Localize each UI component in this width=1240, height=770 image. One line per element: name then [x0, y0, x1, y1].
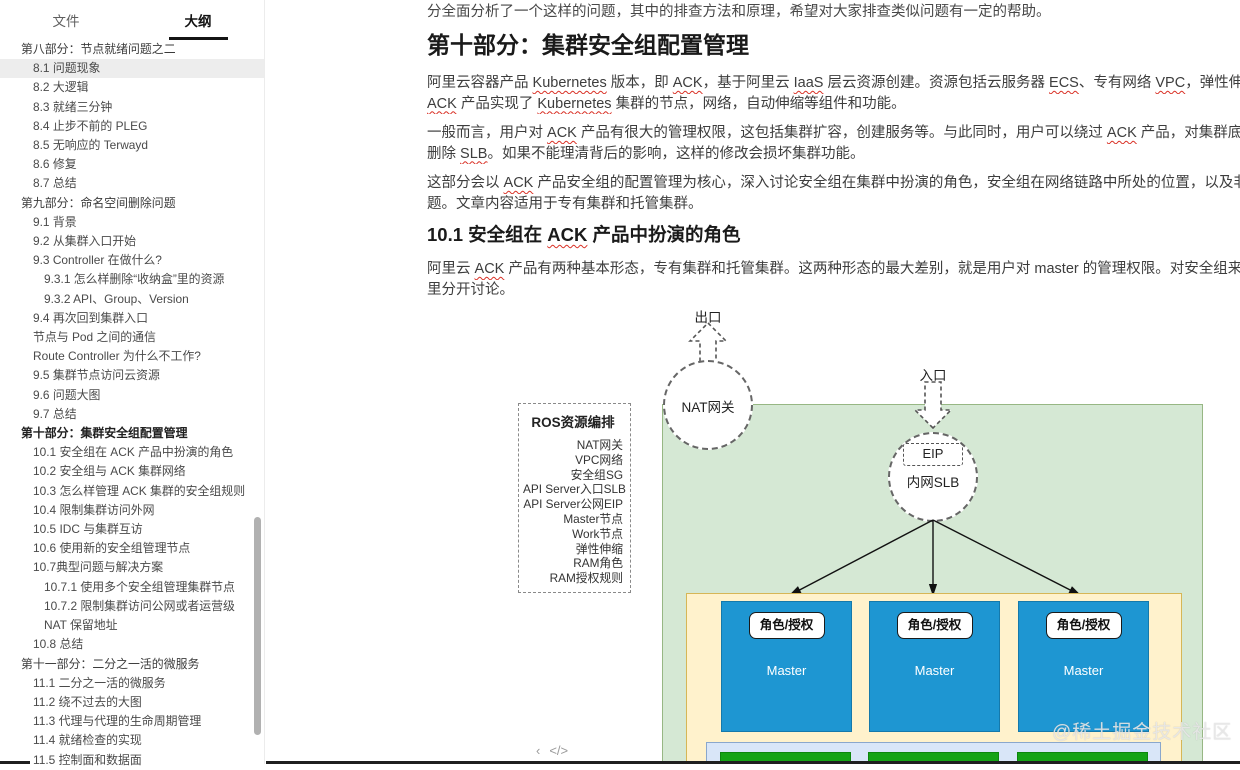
role-auth-tag: 角色/授权: [1046, 612, 1122, 639]
sidebar-item[interactable]: Route Controller 为什么不工作?: [0, 347, 264, 366]
document-pane: 分全面分析了一个这样的问题，其中的排查方法和原理，希望对大家排查类似问题有一定的…: [265, 0, 1240, 764]
sidebar-item[interactable]: 9.4 再次回到集群入口: [0, 309, 264, 328]
sidebar-item[interactable]: 第八部分：节点就绪问题之二: [0, 40, 264, 59]
paragraphs-bottom: 阿里云 ACK 产品有两种基本形态，专有集群和托管集群。这两种形态的最大差别，就…: [427, 259, 1240, 300]
paragraphs-top: 阿里云容器产品 Kubernetes 版本，即 ACK，基于阿里云 IaaS 层…: [427, 73, 1240, 214]
master-group-box: 角色/授权Master角色/授权Master角色/授权Master: [686, 593, 1182, 764]
paragraph: 一般而言，用户对 ACK 产品有很大的管理权限，这包括集群扩容，创建服务等。与此…: [427, 123, 1240, 164]
sidebar-item[interactable]: 9.1 背景: [0, 213, 264, 232]
sidebar-item[interactable]: 10.7.2 限制集群访问公网或者运营级 NAT 保留地址: [0, 597, 264, 635]
tab-outline[interactable]: 大纲: [132, 0, 264, 40]
sidebar-item[interactable]: 9.6 问题大图: [0, 386, 264, 405]
sidebar-item[interactable]: 8.5 无响应的 Terwayd: [0, 136, 264, 155]
master-node-box: 角色/授权Master: [721, 601, 852, 732]
code-view-icon[interactable]: </>: [549, 743, 568, 758]
sidebar-item[interactable]: 8.4 止步不前的 PLEG: [0, 117, 264, 136]
toc-list: 第八部分：节点就绪问题之二8.1 问题现象8.2 大逻辑8.3 就绪三分钟8.4…: [0, 40, 264, 770]
entry-label: 入口: [903, 364, 963, 384]
ros-title: ROS资源编排: [523, 411, 623, 431]
sidebar-item[interactable]: 10.7.1 使用多个安全组管理集群节点: [0, 578, 264, 597]
pane-footer: ‹</>: [536, 743, 577, 758]
ros-item: API Server入口SLB: [523, 482, 623, 497]
ros-item: RAM授权规则: [523, 571, 623, 586]
sidebar-item[interactable]: 8.2 大逻辑: [0, 78, 264, 97]
sidebar-item[interactable]: 10.8 总结: [0, 635, 264, 654]
nat-gateway-node: NAT网关: [663, 360, 753, 450]
eip-tag: EIP: [903, 443, 963, 466]
sidebar-item[interactable]: 节点与 Pod 之间的通信: [0, 328, 264, 347]
watermark: @稀土掘金技术社区: [1052, 717, 1232, 744]
ros-item: Master节点: [523, 512, 623, 527]
sidebar-item[interactable]: 9.5 集群节点访问云资源: [0, 366, 264, 385]
role-auth-tag: 角色/授权: [897, 612, 973, 639]
sidebar-item[interactable]: 10.1 安全组在 ACK 产品中扮演的角色: [0, 443, 264, 462]
sidebar-item[interactable]: 9.7 总结: [0, 405, 264, 424]
sidebar-scrollbar-thumb[interactable]: [254, 517, 261, 735]
sidebar-item[interactable]: 11.4 就绪检查的实现: [0, 731, 264, 750]
ros-item: 弹性伸缩: [523, 542, 623, 557]
sidebar-item[interactable]: 9.3 Controller 在做什么?: [0, 251, 264, 270]
sidebar-item[interactable]: 11.5 控制面和数据面: [0, 751, 264, 770]
sidebar-item[interactable]: 10.4 限制集群访问外网: [0, 501, 264, 520]
article-content: 分全面分析了一个这样的问题，其中的排查方法和原理，希望对大家排查类似问题有一定的…: [427, 0, 1240, 309]
slb-label: 内网SLB: [890, 471, 976, 491]
section-heading: 10.1 安全组在 ACK 产品中扮演的角色: [427, 223, 1240, 247]
sidebar-item[interactable]: 第十部分：集群安全组配置管理: [0, 424, 264, 443]
master-node-box: 角色/授权Master: [1018, 601, 1149, 732]
master-label: Master: [870, 663, 999, 678]
ros-item: VPC网络: [523, 453, 623, 468]
ros-item: 安全组SG: [523, 468, 623, 483]
nat-gateway-label: NAT网关: [665, 396, 751, 416]
ros-items: NAT网关VPC网络安全组SGAPI Server入口SLBAPI Server…: [523, 438, 623, 586]
paragraph: 阿里云 ACK 产品有两种基本形态，专有集群和托管集群。这两种形态的最大差别，就…: [427, 259, 1240, 300]
outline-sidebar: 文件 大纲 第八部分：节点就绪问题之二8.1 问题现象8.2 大逻辑8.3 就绪…: [0, 0, 265, 764]
sidebar-item[interactable]: 9.3.2 API、Group、Version: [0, 290, 264, 309]
master-node-box: 角色/授权Master: [869, 601, 1000, 732]
ros-item: NAT网关: [523, 438, 623, 453]
sidebar-item[interactable]: 10.6 使用新的安全组管理节点: [0, 539, 264, 558]
sidebar-item[interactable]: 10.5 IDC 与集群互访: [0, 520, 264, 539]
sidebar-item[interactable]: 9.2 从集群入口开始: [0, 232, 264, 251]
slb-node: EIP 内网SLB: [888, 432, 978, 522]
sidebar-item[interactable]: 8.1 问题现象: [0, 59, 264, 78]
paragraph: 这部分会以 ACK 产品安全组的配置管理为核心，深入讨论安全组在集群中扮演的角色…: [427, 173, 1240, 214]
sidebar-item[interactable]: 第九部分：命名空间删除问题: [0, 194, 264, 213]
sidebar-item[interactable]: 8.7 总结: [0, 174, 264, 193]
tab-file[interactable]: 文件: [0, 0, 132, 40]
sidebar-tabbar: 文件 大纲: [0, 0, 264, 40]
ros-item: API Server公网EIP: [523, 497, 623, 512]
ros-item: RAM角色: [523, 556, 623, 571]
ros-item: Work节点: [523, 527, 623, 542]
sidebar-item[interactable]: 第十一部分：二分之一活的微服务: [0, 655, 264, 674]
sidebar-item[interactable]: 9.3.1 怎么样删除“收纳盒”里的资源: [0, 270, 264, 289]
paragraph: 阿里云容器产品 Kubernetes 版本，即 ACK，基于阿里云 IaaS 层…: [427, 73, 1240, 114]
sidebar-item[interactable]: 10.7典型问题与解决方案: [0, 558, 264, 577]
collapse-sidebar-icon[interactable]: ‹: [536, 743, 540, 758]
master-label: Master: [722, 663, 851, 678]
sidebar-item[interactable]: 11.2 绕不过去的大图: [0, 693, 264, 712]
chapter-title: 第十部分：集群安全组配置管理: [427, 30, 1240, 60]
sidebar-item[interactable]: 10.3 怎么样管理 ACK 集群的安全组规则: [0, 482, 264, 501]
role-auth-tag: 角色/授权: [749, 612, 825, 639]
sidebar-item[interactable]: 10.2 安全组与 ACK 集群网络: [0, 462, 264, 481]
sidebar-item[interactable]: 11.1 二分之一活的微服务: [0, 674, 264, 693]
sidebar-item[interactable]: 11.3 代理与代理的生命周期管理: [0, 712, 264, 731]
paragraph-partial: 分全面分析了一个这样的问题，其中的排查方法和原理，希望对大家排查类似问题有一定的…: [427, 0, 1240, 22]
sidebar-item[interactable]: 8.3 就绪三分钟: [0, 98, 264, 117]
vpc-region-box: [662, 404, 1203, 764]
dashed-up-arrow-icon: [688, 322, 728, 372]
exit-label: 出口: [678, 306, 738, 326]
master-label: Master: [1019, 663, 1148, 678]
sidebar-item[interactable]: 8.6 修复: [0, 155, 264, 174]
fanout-arrows: [700, 515, 1160, 605]
ros-orchestration-box: ROS资源编排 NAT网关VPC网络安全组SGAPI Server入口SLBAP…: [518, 403, 631, 593]
dashed-down-arrow-icon: [913, 381, 953, 429]
